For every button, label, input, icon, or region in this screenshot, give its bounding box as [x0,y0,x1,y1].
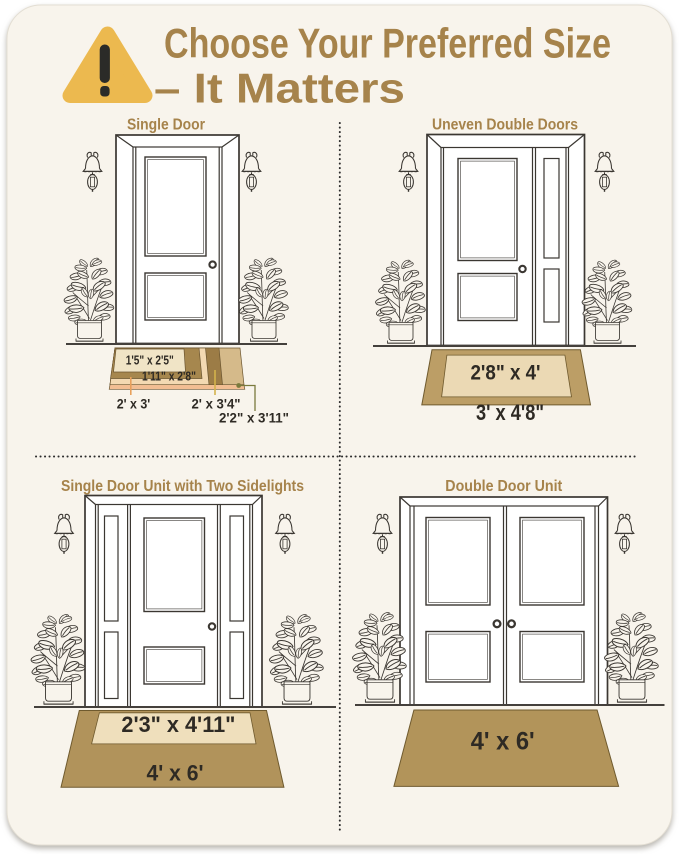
svg-text:– It Matters: – It Matters [154,65,405,112]
svg-text:2' x 3': 2' x 3' [117,396,151,412]
svg-text:4' x 6': 4' x 6' [147,760,204,785]
svg-text:3' x 4'8": 3' x 4'8" [476,400,544,425]
svg-text:Double Door Unit: Double Door Unit [445,478,563,495]
svg-text:4' x 6': 4' x 6' [471,727,535,755]
svg-text:2'8" x 4': 2'8" x 4' [471,361,541,384]
svg-text:Single Door Unit with Two Side: Single Door Unit with Two Sidelights [61,478,304,495]
svg-text:1'5" x 2'5": 1'5" x 2'5" [126,354,174,368]
svg-text:Choose Your Preferred Size: Choose Your Preferred Size [164,20,611,67]
svg-text:2'3" x 4'11": 2'3" x 4'11" [121,712,235,737]
svg-text:Uneven Double Doors: Uneven Double Doors [432,117,578,134]
svg-text:1'11" x 2'8": 1'11" x 2'8" [142,369,196,384]
svg-text:2'2" x 3'11": 2'2" x 3'11" [219,410,289,426]
svg-text:Single Door: Single Door [127,117,205,134]
